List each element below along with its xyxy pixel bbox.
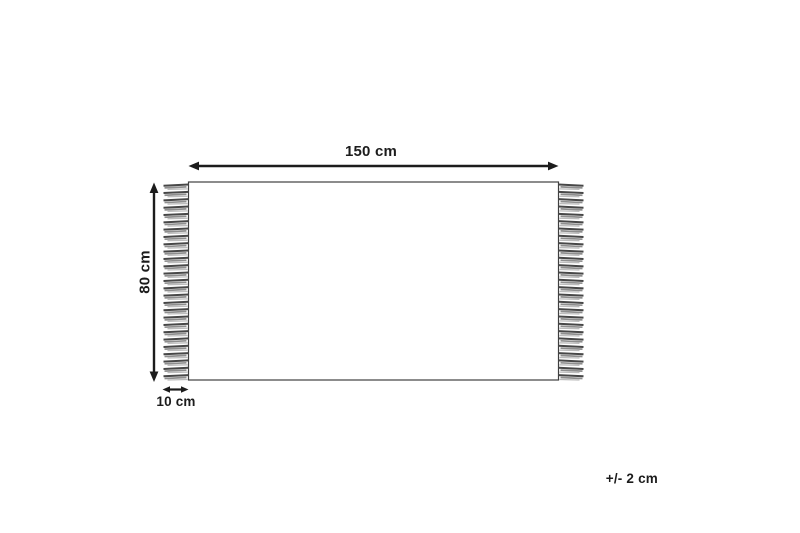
- tassel: [164, 258, 189, 263]
- width-dimension: 150 cm: [189, 143, 559, 170]
- tassel: [559, 287, 584, 292]
- tassel: [559, 309, 584, 314]
- tassel: [164, 309, 189, 314]
- height-label: 80 cm: [137, 250, 154, 294]
- tassel: [559, 250, 584, 255]
- tassel: [164, 331, 189, 336]
- fringe-dimension: 10 cm: [156, 386, 195, 409]
- tassel: [164, 338, 189, 343]
- fringe-arrowhead-right: [181, 386, 189, 393]
- height-dimension: 80 cm: [137, 183, 159, 383]
- tassel: [559, 185, 584, 190]
- tassel: [559, 243, 584, 248]
- tassel: [164, 368, 189, 373]
- tassel: [559, 280, 584, 285]
- tassel: [559, 375, 584, 380]
- tassel: [559, 346, 584, 351]
- tassel: [559, 206, 584, 211]
- tassel: [559, 338, 584, 343]
- tassel: [559, 331, 584, 336]
- tolerance-label: +/- 2 cm: [606, 471, 658, 486]
- right-fringe: [559, 185, 584, 380]
- tassel: [559, 272, 584, 277]
- tassel: [559, 294, 584, 299]
- tassel: [559, 221, 584, 226]
- tassel: [164, 214, 189, 219]
- height-arrowhead-top: [150, 183, 159, 194]
- rug-dimension-diagram-page: 150 cm 80 cm 10 cm +/- 2 cm: [0, 0, 800, 533]
- tassel: [164, 353, 189, 358]
- tassel: [559, 192, 584, 197]
- tassel: [164, 302, 189, 307]
- tassel: [164, 243, 189, 248]
- tassel: [559, 199, 584, 204]
- tassel: [559, 360, 584, 365]
- tassel: [164, 272, 189, 277]
- tassel: [164, 294, 189, 299]
- tassel: [559, 214, 584, 219]
- left-fringe: [164, 185, 189, 380]
- fringe-width-label: 10 cm: [156, 394, 195, 409]
- tassel: [164, 287, 189, 292]
- tassel: [164, 228, 189, 233]
- tassel: [164, 316, 189, 321]
- tassel: [164, 360, 189, 365]
- tassel: [559, 324, 584, 329]
- tassel: [164, 192, 189, 197]
- fringe-arrowhead-left: [163, 386, 171, 393]
- width-arrowhead-left: [189, 162, 200, 171]
- tassel: [164, 280, 189, 285]
- tassel: [559, 265, 584, 270]
- tassel: [164, 250, 189, 255]
- rug-body: [189, 182, 559, 380]
- tassel: [164, 375, 189, 380]
- tassel: [164, 185, 189, 190]
- width-arrowhead-right: [548, 162, 559, 171]
- tassel: [164, 221, 189, 226]
- tassel: [559, 258, 584, 263]
- tassel: [559, 368, 584, 373]
- tassel: [559, 228, 584, 233]
- rug-dimension-diagram: 150 cm 80 cm 10 cm +/- 2 cm: [0, 0, 800, 533]
- tassel: [559, 353, 584, 358]
- width-label: 150 cm: [345, 143, 397, 160]
- tassel: [164, 236, 189, 241]
- tassel: [164, 265, 189, 270]
- tassel: [164, 346, 189, 351]
- height-arrowhead-bottom: [150, 372, 159, 383]
- tassel: [559, 316, 584, 321]
- tassel: [559, 236, 584, 241]
- tassel: [559, 302, 584, 307]
- tassel: [164, 206, 189, 211]
- tassel: [164, 324, 189, 329]
- tassel: [164, 199, 189, 204]
